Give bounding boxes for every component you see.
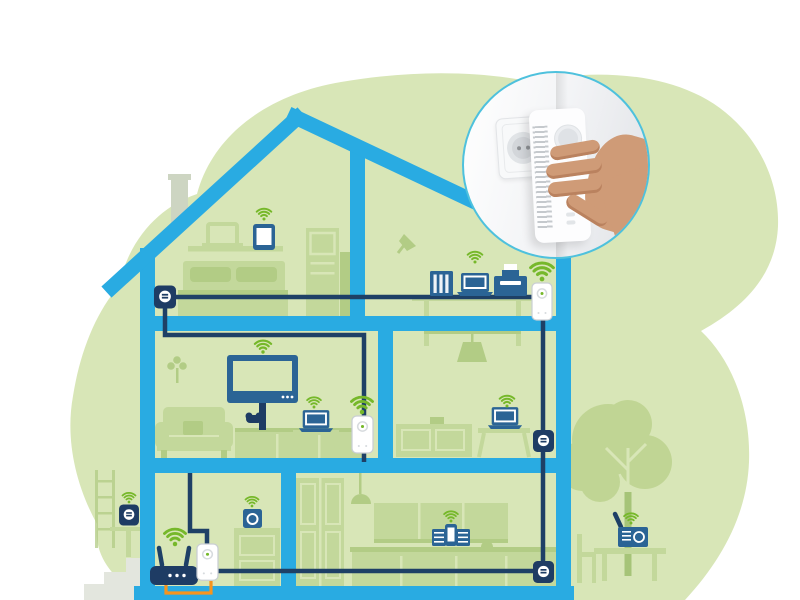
right-wall: [556, 252, 571, 600]
adapter-button: [566, 220, 575, 224]
sofa: [155, 407, 233, 458]
kitchen-counter: [350, 541, 558, 586]
powerline-adapter-attic: [532, 283, 552, 320]
nas-server: [430, 271, 453, 296]
office-laptop: [457, 273, 493, 296]
hallway-furniture: [234, 528, 280, 586]
middle-partition-wall: [378, 331, 393, 458]
socket-adapter-kitchen: [533, 561, 554, 583]
dresser: [234, 528, 280, 586]
study-laptop: [488, 407, 522, 429]
left-wall: [140, 248, 155, 600]
tablet: [253, 224, 275, 250]
attic-partition-wall: [350, 149, 365, 316]
socket-adapter-attic: [154, 285, 176, 308]
illustration-svg: [0, 0, 800, 600]
attic-floor: [140, 316, 571, 331]
middle-floor: [140, 458, 571, 473]
powerline-adapter-hallway: [197, 544, 218, 580]
outdoor-speaker-left: [119, 505, 139, 526]
home-network-illustration: [0, 0, 800, 600]
powerline-adapter-living: [352, 416, 373, 453]
speaker: [243, 509, 262, 528]
inset-photo-plugging-adapter: [462, 71, 650, 259]
bed: [178, 261, 288, 316]
living-room-laptop: [299, 410, 333, 432]
adapter-button: [566, 212, 575, 216]
socket-adapter-study: [533, 430, 554, 452]
